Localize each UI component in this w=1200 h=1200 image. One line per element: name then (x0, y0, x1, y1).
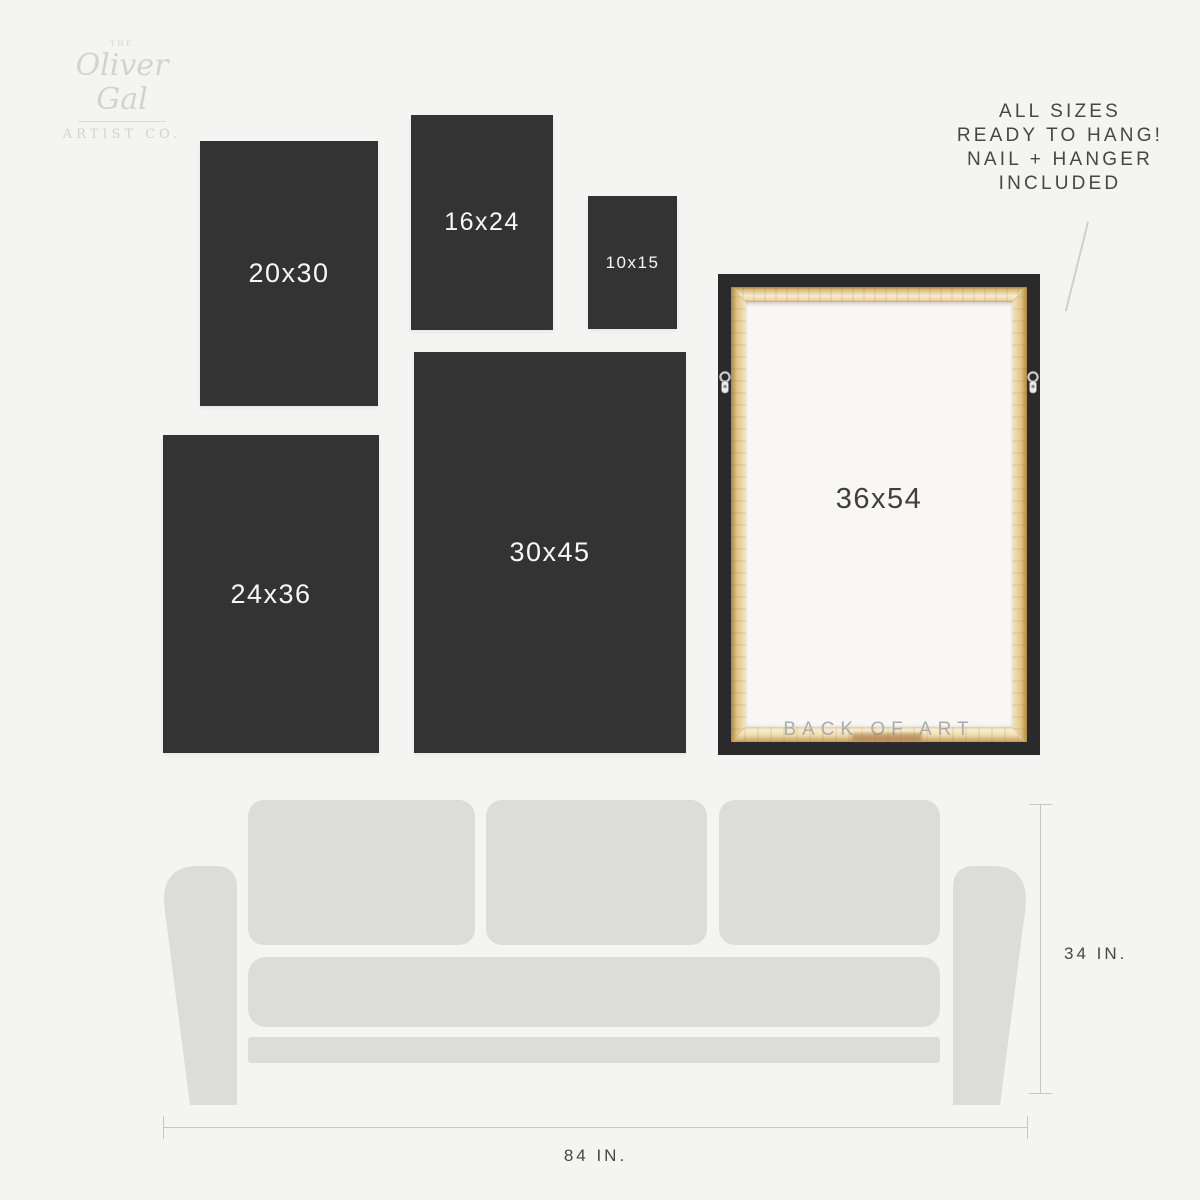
couch-back-cushion-3 (719, 800, 940, 945)
couch-base-bar (248, 1037, 940, 1063)
size-guide-page: { "colors": { "background": "#f4f4f3", "… (0, 0, 1200, 1200)
couch-arm-right (953, 866, 1026, 1105)
couch-seat-cushion (248, 957, 940, 1027)
height-dimension-line (1040, 804, 1041, 1094)
couch-width-label: 84 IN. (163, 1146, 1028, 1166)
width-dimension-line (163, 1127, 1028, 1128)
couch-back-cushion-2 (486, 800, 707, 945)
couch-height-label: 34 IN. (1064, 944, 1127, 964)
couch-silhouette (0, 0, 1200, 1200)
couch-back-cushion-1 (248, 800, 475, 945)
couch-arm-left (164, 866, 237, 1105)
